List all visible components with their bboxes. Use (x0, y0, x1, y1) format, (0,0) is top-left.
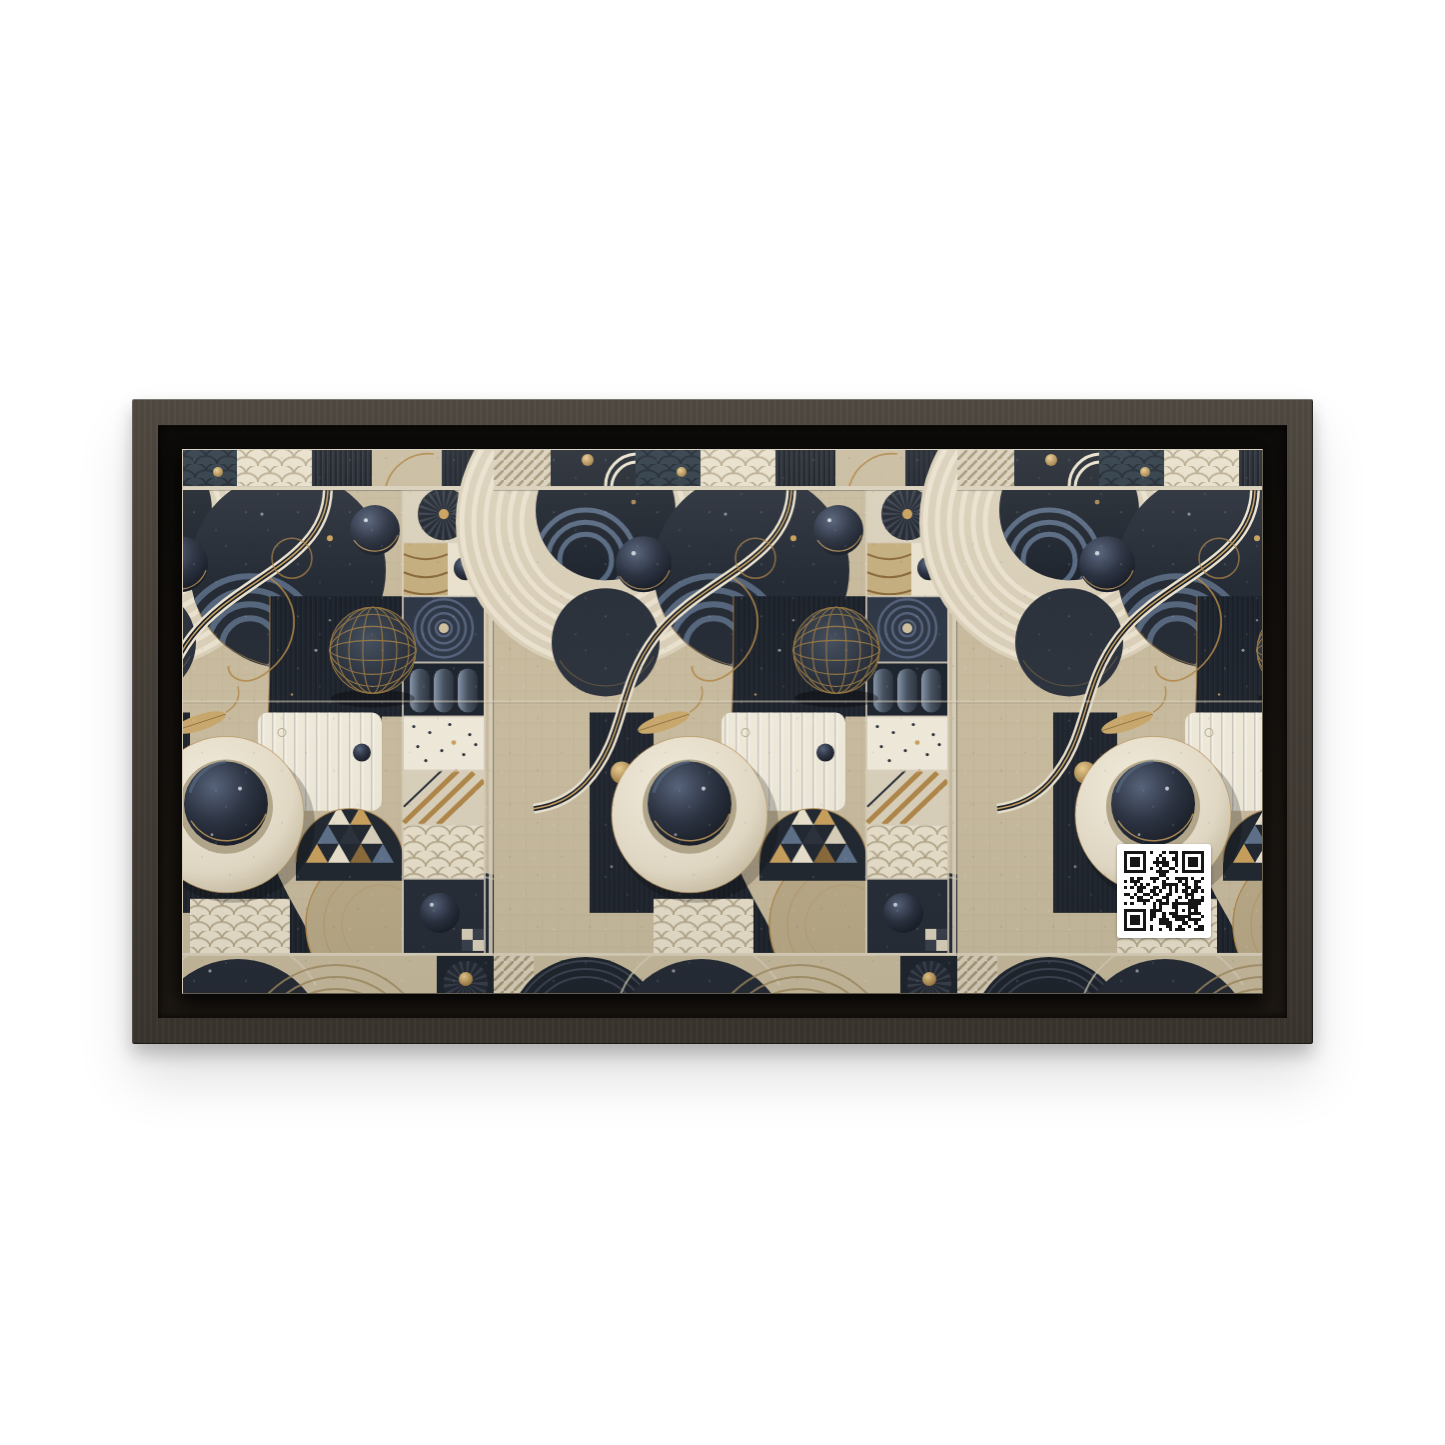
page-background (0, 0, 1445, 1445)
qr-code (1117, 844, 1211, 938)
frame-recess-shadow-gap (158, 425, 1287, 1018)
picture-frame (132, 399, 1313, 1044)
canvas-artwork (182, 449, 1263, 994)
qr-modules (1124, 851, 1204, 931)
abstract-artwork (183, 450, 1262, 993)
